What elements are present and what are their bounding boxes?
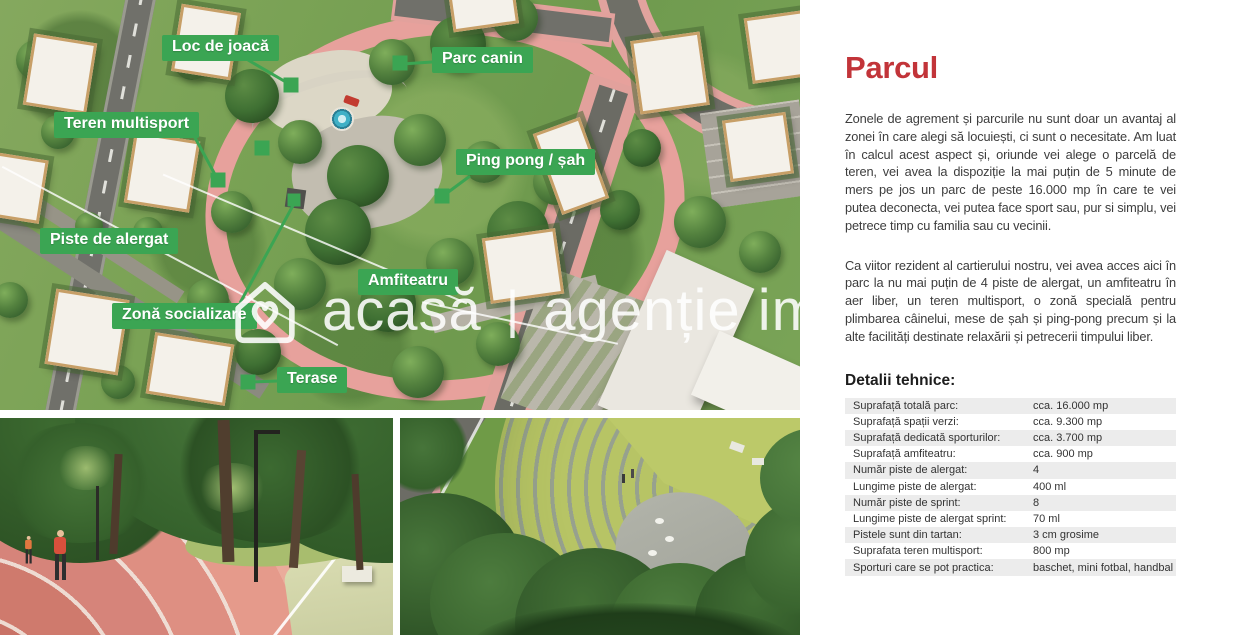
lamp-arm [254, 430, 280, 434]
row-value: cca. 16.000 mp [1033, 400, 1176, 412]
intro-paragraph: Zonele de agrement și parcurile nu sunt … [845, 110, 1176, 235]
label-connectors [0, 0, 800, 410]
table-row: Număr piste de sprint:8 [845, 495, 1176, 511]
masterplan-map[interactable]: Loc de joacă Parc canin Teren multisport… [0, 0, 800, 410]
row-value: 8 [1033, 497, 1176, 509]
row-value: 70 ml [1033, 513, 1176, 525]
sun-dapple [55, 446, 117, 490]
table-row: Număr piste de alergat:4 [845, 462, 1176, 478]
lamp-post [96, 486, 99, 560]
table-row: Suprafață amfiteatru:cca. 900 mp [845, 446, 1176, 462]
row-value: 3 cm grosime [1033, 529, 1176, 541]
page: Loc de joacă Parc canin Teren multisport… [0, 0, 1234, 635]
table-row: Suprafață totală parc:cca. 16.000 mp [845, 398, 1176, 414]
table-row: Sporturi care se pot practica:baschet, m… [845, 559, 1176, 575]
map-label-loc-de-joaca[interactable]: Loc de joacă [162, 35, 279, 61]
row-value: 800 mp [1033, 545, 1176, 557]
map-label-terase[interactable]: Terase [277, 367, 347, 393]
table-row: Lungime piste de alergat:400 ml [845, 479, 1176, 495]
row-label: Pistele sunt din tartan: [853, 529, 1033, 541]
white-sculpture [655, 518, 664, 524]
runner [24, 536, 32, 564]
person [622, 474, 625, 483]
details-heading: Detalii tehnice: [845, 372, 1176, 390]
row-label: Suprafață dedicată sporturilor: [853, 432, 1033, 444]
row-label: Sporturi care se pot practica: [853, 562, 1033, 574]
map-label-amfiteatru[interactable]: Amfiteatru [358, 269, 458, 295]
person [631, 469, 634, 478]
row-value: 400 ml [1033, 481, 1176, 493]
row-label: Suprafață totală parc: [853, 400, 1033, 412]
table-row: Suprafață dedicată sporturilor:cca. 3.70… [845, 430, 1176, 446]
table-row: Pistele sunt din tartan:3 cm grosime [845, 527, 1176, 543]
row-label: Suprafata teren multisport: [853, 545, 1033, 557]
row-value: cca. 9.300 mp [1033, 416, 1176, 428]
map-label-piste-de-alergat[interactable]: Piste de alergat [40, 228, 178, 254]
white-sculpture [665, 536, 674, 542]
photo-running-track[interactable] [0, 418, 393, 635]
map-label-teren-multisport[interactable]: Teren multisport [54, 112, 199, 138]
map-label-parc-canin[interactable]: Parc canin [432, 47, 533, 73]
features-paragraph: Ca viitor rezident al cartierului nostru… [845, 257, 1176, 346]
runner [52, 530, 66, 580]
row-label: Lungime piste de alergat: [853, 481, 1033, 493]
row-label: Număr piste de sprint: [853, 497, 1033, 509]
table-row: Lungime piste de alergat sprint:70 ml [845, 511, 1176, 527]
row-value: baschet, mini fotbal, handbal [1033, 562, 1176, 574]
row-label: Lungime piste de alergat sprint: [853, 513, 1033, 525]
white-sculpture [648, 550, 657, 556]
table-row: Suprafață spații verzi:cca. 9.300 mp [845, 414, 1176, 430]
details-table: Suprafață totală parc:cca. 16.000 mp Sup… [845, 398, 1176, 576]
row-label: Suprafață amfiteatru: [853, 448, 1033, 460]
row-label: Suprafață spații verzi: [853, 416, 1033, 428]
row-value: cca. 900 mp [1033, 448, 1176, 460]
photo-amphitheater[interactable] [400, 418, 800, 635]
lamp-post [254, 430, 258, 582]
bench [752, 458, 764, 465]
row-value: cca. 3.700 mp [1033, 432, 1176, 444]
map-label-zona-socializare[interactable]: Zonă socializare [112, 303, 257, 329]
row-value: 4 [1033, 464, 1176, 476]
map-label-ping-pong-sah[interactable]: Ping pong / șah [456, 149, 595, 175]
table-row: Suprafata teren multisport:800 mp [845, 543, 1176, 559]
row-label: Număr piste de alergat: [853, 464, 1033, 476]
info-panel: Parcul Zonele de agrement și parcurile n… [800, 0, 1234, 635]
page-title: Parcul [845, 50, 1176, 86]
